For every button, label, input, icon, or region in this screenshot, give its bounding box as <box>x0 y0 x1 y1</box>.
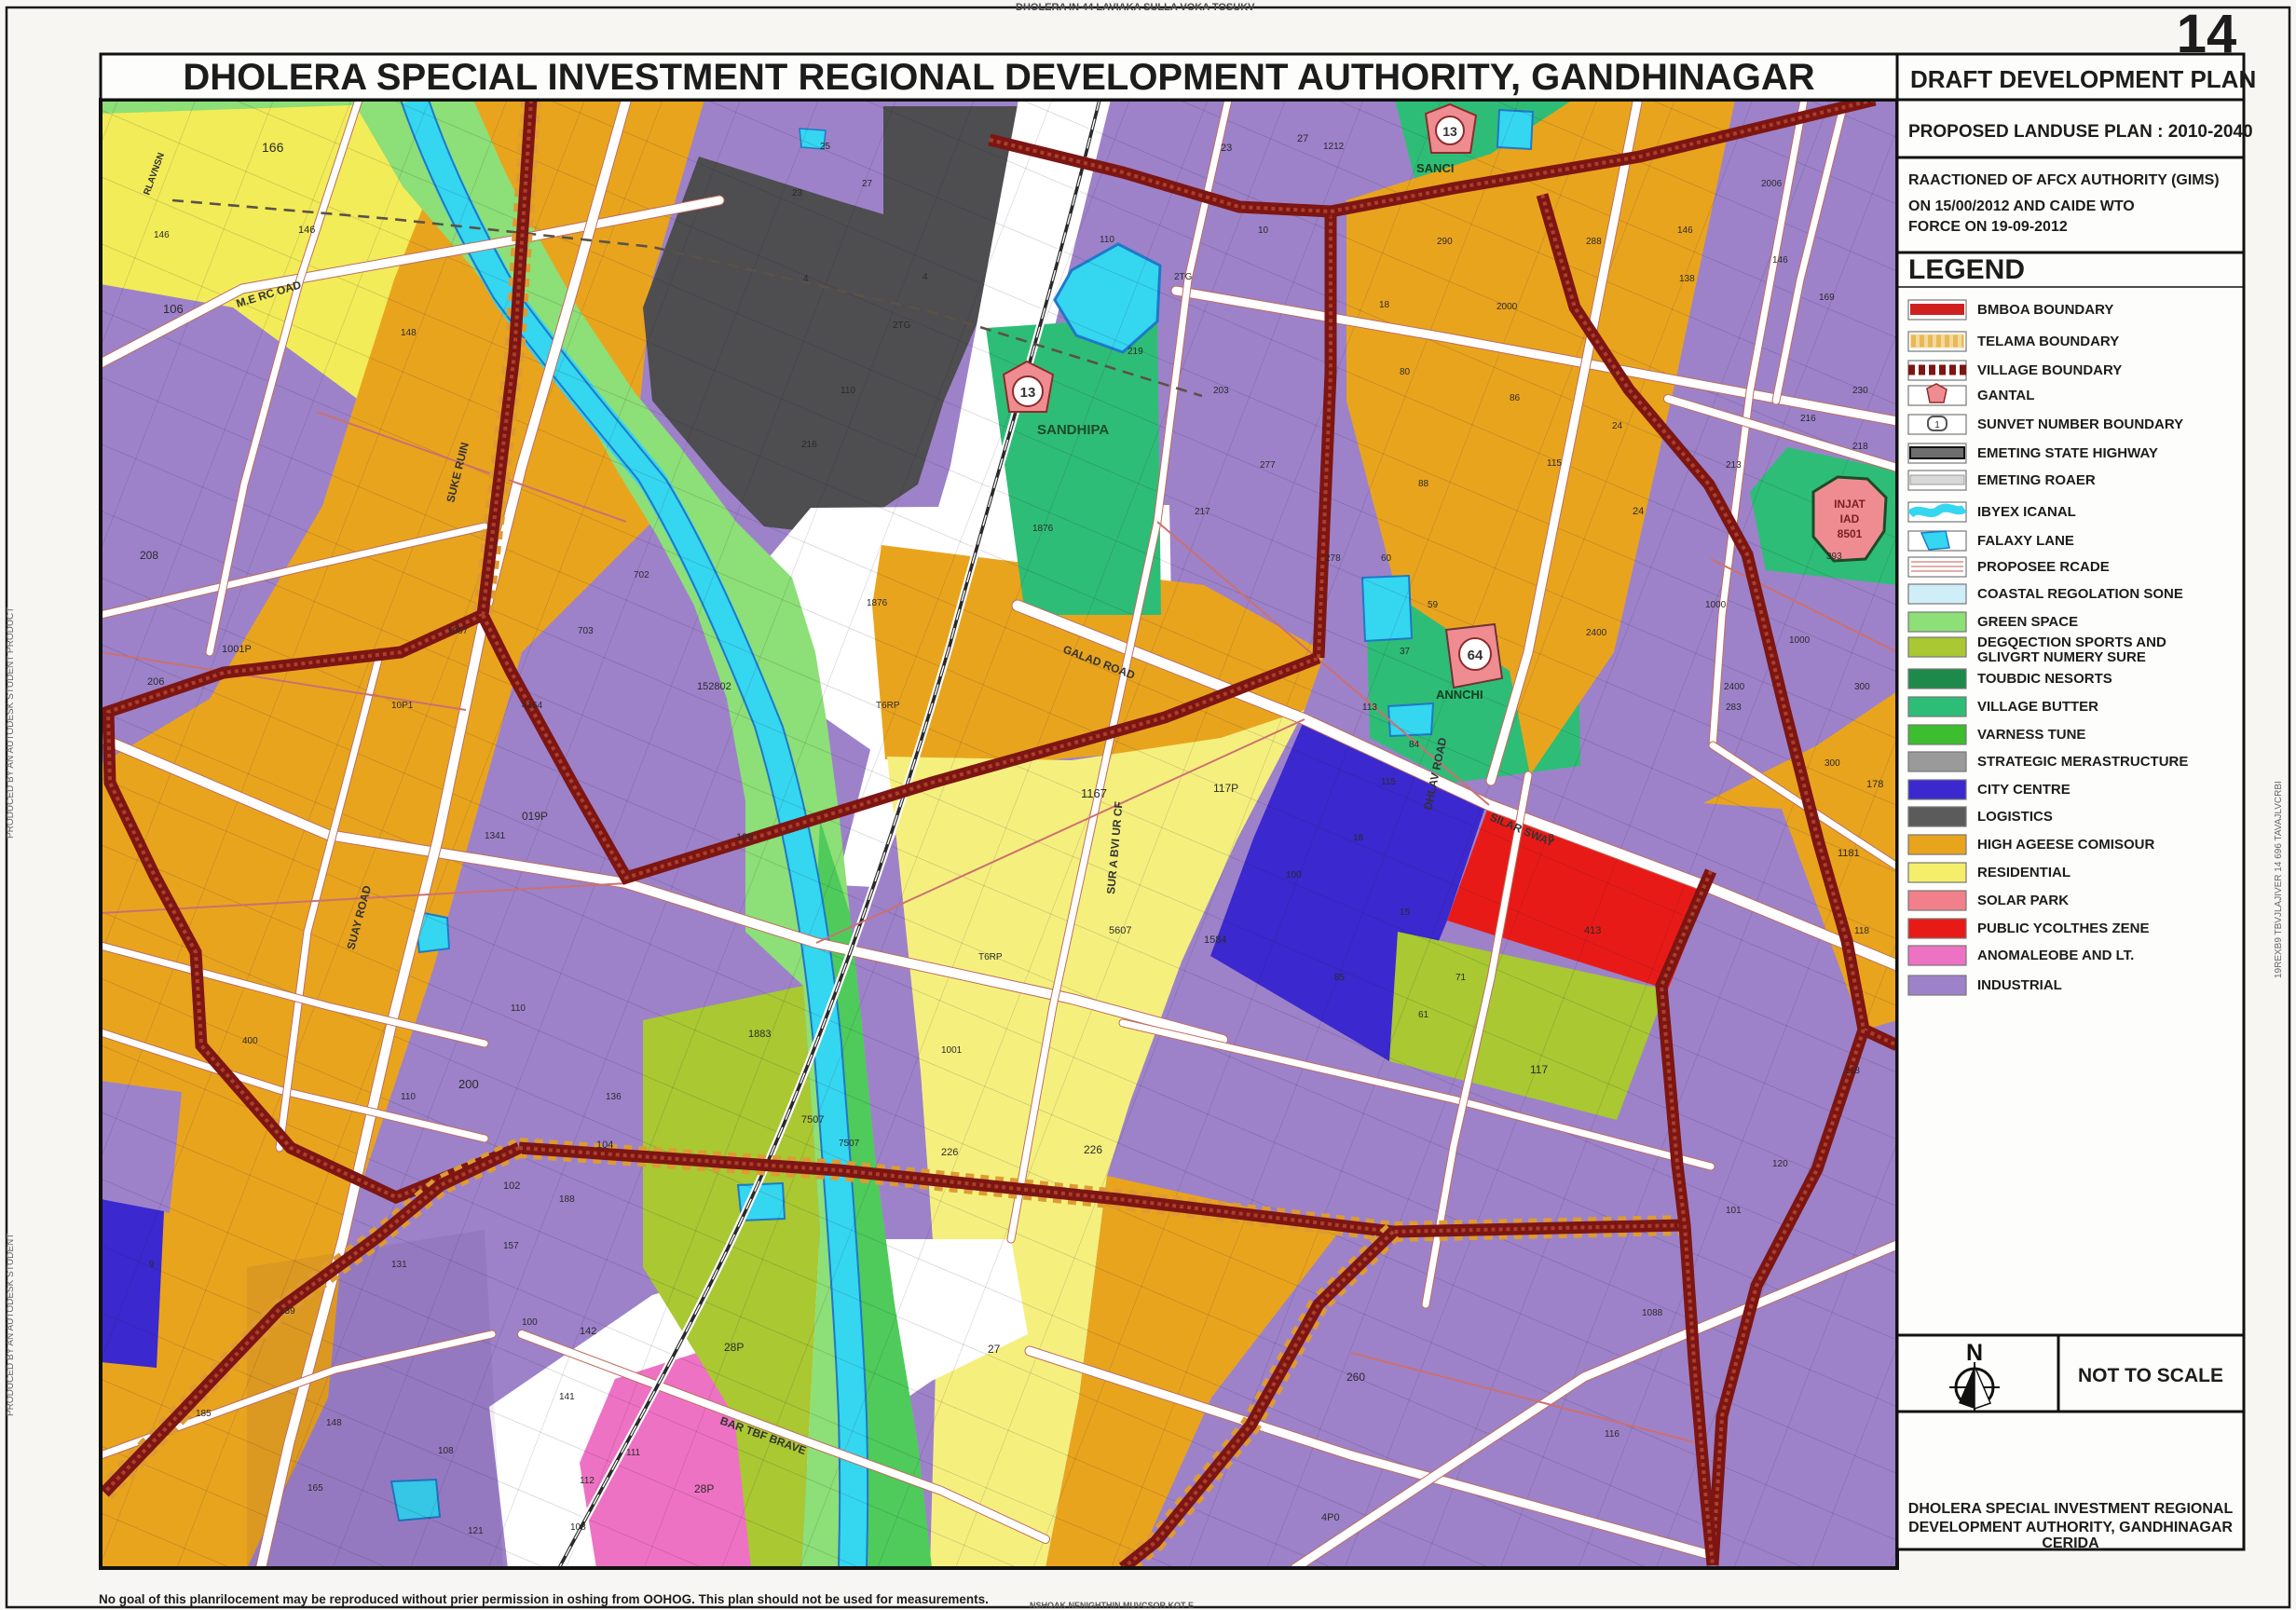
svg-text:NOT TO SCALE: NOT TO SCALE <box>2078 1365 2223 1386</box>
svg-text:166: 166 <box>262 140 284 155</box>
svg-text:100: 100 <box>1286 870 1302 880</box>
svg-text:8501: 8501 <box>1838 527 1863 540</box>
svg-text:IAD: IAD <box>1840 512 1860 525</box>
svg-text:213: 213 <box>1726 460 1742 471</box>
svg-text:86: 86 <box>1510 393 1521 403</box>
svg-text:ANOMALEOBE AND LT.: ANOMALEOBE AND LT. <box>1977 948 2134 963</box>
svg-text:PROPOSEE RCADE: PROPOSEE RCADE <box>1977 559 2110 575</box>
svg-text:413: 413 <box>1584 925 1601 936</box>
svg-text:4: 4 <box>922 272 928 282</box>
svg-text:226: 226 <box>941 1147 958 1158</box>
svg-text:188: 188 <box>559 1194 575 1205</box>
svg-text:108: 108 <box>570 1522 586 1533</box>
svg-text:25: 25 <box>820 142 831 152</box>
svg-text:ANNCHI: ANNCHI <box>1436 688 1483 702</box>
svg-text:10P1: 10P1 <box>391 701 414 711</box>
svg-text:LEGEND: LEGEND <box>1908 254 2025 285</box>
svg-text:PRODUCED BY AN AUTODESK STUDEN: PRODUCED BY AN AUTODESK STUDENT PRODUCT <box>6 607 16 839</box>
svg-text:1181: 1181 <box>1838 848 1860 859</box>
svg-text:13: 13 <box>1442 124 1457 139</box>
svg-text:139: 139 <box>280 1306 295 1317</box>
svg-text:102: 102 <box>503 1180 520 1192</box>
svg-text:CERIDA: CERIDA <box>2042 1535 2099 1551</box>
svg-text:157: 157 <box>503 1241 519 1251</box>
svg-text:60: 60 <box>1381 553 1392 564</box>
svg-text:104: 104 <box>596 1139 613 1151</box>
svg-text:1001: 1001 <box>941 1045 963 1056</box>
svg-text:2TG: 2TG <box>893 321 911 331</box>
svg-text:1883: 1883 <box>748 1029 771 1040</box>
svg-text:27: 27 <box>988 1343 1001 1356</box>
svg-text:200: 200 <box>458 1077 479 1091</box>
svg-text:T6RP: T6RP <box>876 701 900 711</box>
svg-text:1212: 1212 <box>1323 142 1345 152</box>
svg-text:165: 165 <box>307 1483 323 1494</box>
svg-text:2006: 2006 <box>1761 179 1783 189</box>
svg-text:208: 208 <box>140 549 158 562</box>
svg-text:DHOLERA IN 44 LAVIAKA SULLA VO: DHOLERA IN 44 LAVIAKA SULLA VOKA TOSUKV <box>1016 2 1255 13</box>
svg-text:No goal of this planrilocement: No goal of this planrilocement may be re… <box>99 1592 989 1606</box>
svg-text:136: 136 <box>606 1092 622 1102</box>
svg-text:230: 230 <box>1852 386 1868 396</box>
svg-text:88: 88 <box>1418 479 1429 489</box>
svg-text:37: 37 <box>1400 647 1411 657</box>
svg-text:GANTAL: GANTAL <box>1977 388 2034 403</box>
svg-text:ON 15/00/2012 AND CAIDE WTO: ON 15/00/2012 AND CAIDE WTO <box>1908 198 2135 214</box>
svg-text:278: 278 <box>1325 553 1341 564</box>
svg-text:64: 64 <box>1468 648 1483 663</box>
svg-text:CITY CENTRE: CITY CENTRE <box>1977 782 2070 798</box>
svg-text:24: 24 <box>1633 506 1644 517</box>
svg-text:SUNVET NUMBER BOUNDARY: SUNVET NUMBER BOUNDARY <box>1977 416 2183 432</box>
svg-text:142: 142 <box>580 1326 596 1337</box>
svg-text:TELAMA BOUNDARY: TELAMA BOUNDARY <box>1977 334 2119 349</box>
svg-text:N: N <box>1966 1340 1983 1366</box>
svg-text:400: 400 <box>242 1036 258 1046</box>
svg-text:146: 146 <box>154 230 170 240</box>
svg-text:59: 59 <box>1428 600 1439 610</box>
svg-text:28P: 28P <box>694 1482 714 1495</box>
svg-text:80: 80 <box>1400 367 1411 377</box>
svg-text:019P: 019P <box>522 810 548 823</box>
svg-text:RESIDENTIAL: RESIDENTIAL <box>1977 865 2070 880</box>
svg-text:18: 18 <box>1379 300 1390 310</box>
svg-text:4P0: 4P0 <box>1321 1512 1340 1523</box>
svg-text:T6RP: T6RP <box>978 952 1003 962</box>
svg-text:10: 10 <box>1258 225 1269 236</box>
svg-text:219: 219 <box>1127 347 1143 357</box>
svg-text:106: 106 <box>163 302 184 316</box>
svg-text:146: 146 <box>1772 255 1788 266</box>
svg-text:118: 118 <box>1854 926 1869 936</box>
svg-text:27: 27 <box>862 179 873 189</box>
svg-text:1876: 1876 <box>1032 524 1054 534</box>
svg-text:RAACTIONED OF AFCX AUTHORITY (: RAACTIONED OF AFCX AUTHORITY (GIMS) <box>1908 172 2220 188</box>
svg-text:115: 115 <box>1381 777 1396 787</box>
svg-text:110: 110 <box>511 1003 526 1014</box>
svg-text:27: 27 <box>1297 133 1308 144</box>
svg-text:1000: 1000 <box>1789 635 1811 646</box>
svg-text:110: 110 <box>840 386 855 396</box>
svg-text:300: 300 <box>1824 758 1840 769</box>
svg-text:2400: 2400 <box>1724 682 1745 692</box>
svg-text:2000: 2000 <box>1496 302 1518 312</box>
svg-text:146: 146 <box>298 225 315 236</box>
svg-text:VARNESS TUNE: VARNESS TUNE <box>1977 727 2085 743</box>
svg-text:7507: 7507 <box>801 1114 824 1126</box>
svg-text:GREEN SPACE: GREEN SPACE <box>1977 614 2078 630</box>
svg-text:1088: 1088 <box>1642 1308 1663 1318</box>
svg-text:19REXB9 TBVJLAJIVER 14 696 TAV: 19REXB9 TBVJLAJIVER 14 696 TAVAJLVCRBI <box>2274 781 2284 978</box>
svg-text:116: 116 <box>1605 1429 1619 1439</box>
svg-text:702: 702 <box>634 570 649 580</box>
svg-text:DEGQECTION SPORTS AND: DEGQECTION SPORTS AND <box>1977 634 2166 650</box>
svg-text:84: 84 <box>1409 740 1420 750</box>
svg-text:STRATEGIC MERASTRUCTURE: STRATEGIC MERASTRUCTURE <box>1977 754 2188 770</box>
svg-text:283: 283 <box>1726 703 1742 713</box>
svg-text:138: 138 <box>1679 274 1695 284</box>
svg-text:101: 101 <box>1726 1206 1742 1216</box>
svg-text:VILLAGE BOUNDARY: VILLAGE BOUNDARY <box>1977 362 2122 378</box>
svg-text:PUBLIC YCOLTHES ZENE: PUBLIC YCOLTHES ZENE <box>1977 921 2149 936</box>
svg-text:203: 203 <box>1213 386 1229 396</box>
svg-text:DEVELOPMENT AUTHORITY, GANDHI: DEVELOPMENT AUTHORITY, GANDHINAGAR <box>1908 1520 2233 1535</box>
svg-text:100: 100 <box>522 1317 538 1328</box>
svg-text:300: 300 <box>1854 682 1870 692</box>
svg-text:IBYEX ICANAL: IBYEX ICANAL <box>1977 504 2076 520</box>
svg-text:113: 113 <box>1362 703 1377 713</box>
svg-text:288: 288 <box>1586 237 1602 247</box>
svg-text:393: 393 <box>1826 552 1842 562</box>
svg-text:108: 108 <box>438 1446 454 1456</box>
svg-text:INJAT: INJAT <box>1834 498 1865 511</box>
svg-text:260: 260 <box>1346 1371 1365 1384</box>
svg-text:COASTAL REGOLATION SONE: COASTAL REGOLATION SONE <box>1977 586 2183 602</box>
svg-text:110: 110 <box>1100 235 1114 245</box>
svg-text:28P: 28P <box>724 1341 744 1354</box>
svg-text:1341: 1341 <box>485 831 506 841</box>
svg-text:111: 111 <box>626 1448 641 1458</box>
svg-text:FORCE ON 19-09-2012: FORCE ON 19-09-2012 <box>1908 219 2068 235</box>
svg-text:4164: 4164 <box>522 701 543 711</box>
svg-text:277: 277 <box>1260 460 1276 471</box>
svg-text:FALAXY LANE: FALAXY LANE <box>1977 533 2074 549</box>
svg-text:100: 100 <box>736 832 753 843</box>
svg-text:120: 120 <box>1772 1159 1788 1169</box>
svg-text:703: 703 <box>578 626 594 636</box>
svg-text:DHOLERA SPECIAL INVESTMENT REG: DHOLERA SPECIAL INVESTMENT REGIONAL <box>1908 1501 2234 1517</box>
svg-text:9: 9 <box>149 1260 155 1270</box>
svg-text:1000: 1000 <box>1705 600 1727 610</box>
svg-text:18: 18 <box>1353 833 1364 843</box>
svg-text:7507: 7507 <box>839 1139 860 1149</box>
svg-text:EMETING ROAER: EMETING ROAER <box>1977 472 2096 488</box>
svg-text:23: 23 <box>792 188 803 198</box>
svg-text:DRAFT DEVELOPMENT PLAN: DRAFT DEVELOPMENT PLAN <box>1910 65 2256 93</box>
svg-text:146: 146 <box>1677 225 1693 236</box>
svg-text:148: 148 <box>401 328 417 338</box>
svg-text:LOGISTICS: LOGISTICS <box>1977 809 2053 825</box>
svg-text:1001P: 1001P <box>222 644 252 655</box>
svg-text:1: 1 <box>1934 420 1940 430</box>
svg-text:226: 226 <box>1084 1143 1102 1156</box>
svg-text:110: 110 <box>401 1092 416 1102</box>
svg-text:216: 216 <box>801 440 817 450</box>
svg-text:216: 216 <box>1800 414 1816 424</box>
svg-text:24: 24 <box>1612 421 1623 431</box>
svg-text:218: 218 <box>1852 442 1868 452</box>
svg-text:TOUBDIC NESORTS: TOUBDIC NESORTS <box>1977 671 2112 687</box>
svg-text:178: 178 <box>1866 779 1883 790</box>
svg-text:71: 71 <box>1455 973 1467 983</box>
svg-text:NSHOAK NENIGHTHIN MUVCSOR KOT: NSHOAK NENIGHTHIN MUVCSOR KOT E <box>1030 1601 1194 1610</box>
svg-text:118: 118 <box>1845 1066 1860 1076</box>
svg-text:DHOLERA SPECIAL INVESTMENT REG: DHOLERA SPECIAL INVESTMENT REGIONAL DEVE… <box>183 57 1814 98</box>
svg-text:148: 148 <box>326 1418 342 1428</box>
svg-text:141: 141 <box>559 1392 575 1402</box>
svg-text:INDUSTRIAL: INDUSTRIAL <box>1977 977 2062 993</box>
svg-text:169: 169 <box>1819 293 1835 303</box>
svg-text:14: 14 <box>2177 4 2237 64</box>
svg-text:115: 115 <box>1547 458 1562 469</box>
svg-text:290: 290 <box>1437 237 1453 247</box>
svg-text:SOLAR PARK: SOLAR PARK <box>1977 893 2069 908</box>
svg-text:4: 4 <box>803 274 809 284</box>
svg-text:121: 121 <box>468 1526 484 1536</box>
svg-text:1876: 1876 <box>867 598 888 608</box>
svg-text:SANDHIPA: SANDHIPA <box>1037 422 1109 438</box>
svg-text:117P: 117P <box>1213 782 1238 795</box>
svg-text:112: 112 <box>580 1476 594 1486</box>
svg-text:HIGH AGEESE COMISOUR: HIGH AGEESE COMISOUR <box>1977 837 2154 853</box>
svg-text:PRODUCED BY AN AUTODESK STUDEN: PRODUCED BY AN AUTODESK STUDENT <box>6 1234 16 1416</box>
svg-text:61: 61 <box>1418 1010 1429 1020</box>
svg-text:217: 217 <box>1195 507 1210 517</box>
svg-text:23: 23 <box>1221 143 1232 154</box>
svg-text:5607: 5607 <box>1109 925 1131 936</box>
svg-text:185: 185 <box>196 1409 212 1419</box>
svg-text:2TG: 2TG <box>1174 272 1193 282</box>
svg-text:85: 85 <box>1334 973 1346 983</box>
svg-text:15: 15 <box>1400 907 1411 918</box>
svg-text:131: 131 <box>391 1260 407 1270</box>
svg-text:SANCI: SANCI <box>1416 161 1454 175</box>
svg-text:GLIVGRT NUMERY SURE: GLIVGRT NUMERY SURE <box>1977 649 2146 665</box>
svg-text:PROPOSED LANDUSE PLAN : 2010-: PROPOSED LANDUSE PLAN : 2010-2040 <box>1908 122 2253 142</box>
svg-text:152802: 152802 <box>697 681 731 692</box>
svg-text:BMBOA BOUNDARY: BMBOA BOUNDARY <box>1977 302 2113 318</box>
svg-text:1584: 1584 <box>1204 935 1226 946</box>
svg-text:117: 117 <box>1530 1063 1548 1076</box>
svg-text:VILLAGE BUTTER: VILLAGE BUTTER <box>1977 699 2098 715</box>
svg-text:1167: 1167 <box>1081 786 1107 800</box>
svg-text:2400: 2400 <box>1586 628 1607 638</box>
svg-text:206: 206 <box>147 676 164 688</box>
svg-text:1067: 1067 <box>447 626 469 636</box>
svg-text:13: 13 <box>1020 385 1036 401</box>
svg-text:EMETING STATE HIGHWAY: EMETING STATE HIGHWAY <box>1977 445 2158 461</box>
